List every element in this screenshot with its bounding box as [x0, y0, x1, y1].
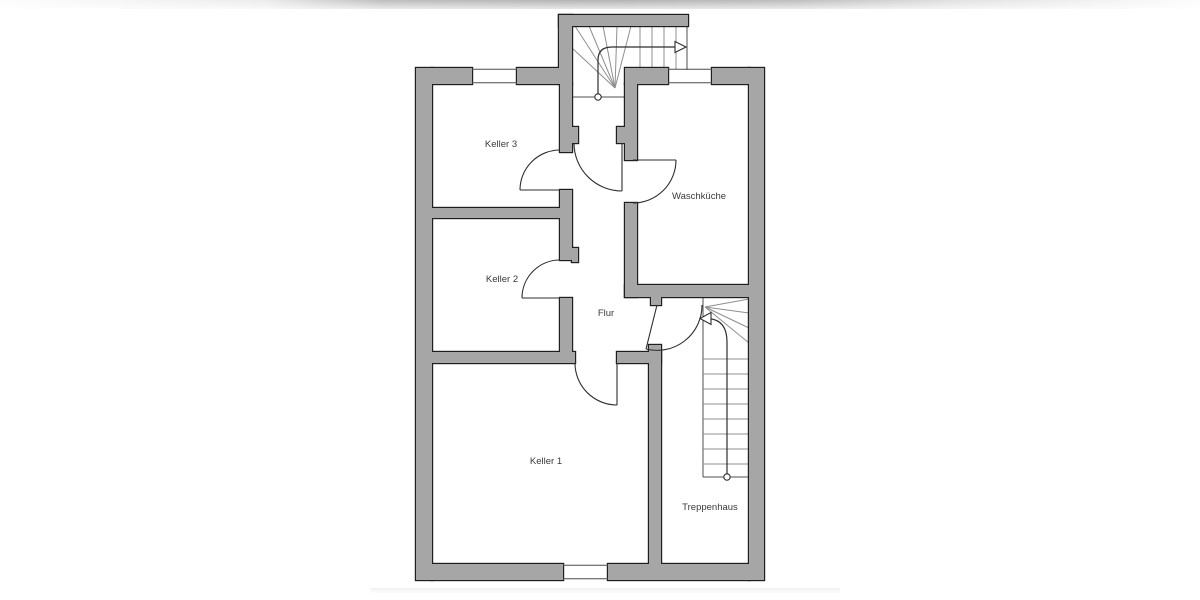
doors	[520, 143, 702, 405]
stair-tread	[589, 26, 615, 88]
room-label-flur: Flur	[598, 308, 614, 319]
lower-stairs	[700, 298, 749, 480]
walls-outline-layer	[416, 15, 764, 580]
stair-walk-line	[709, 319, 727, 474]
door-swing-arc-keller1	[575, 363, 617, 405]
room-labels: Keller 3 Keller 2 Keller 1 Waschküche Fl…	[485, 139, 738, 513]
floor-plan: Keller 3 Keller 2 Keller 1 Waschküche Fl…	[0, 0, 1200, 600]
walk-line-start-marker	[595, 94, 601, 100]
door-leaf-treppenhaus	[646, 305, 657, 349]
room-label-waschkueche: Waschküche	[672, 191, 726, 202]
stair-direction-arrow-icon	[675, 42, 686, 53]
room-label-keller2: Keller 2	[486, 274, 518, 285]
door-swing-arc-landing	[574, 143, 622, 191]
walk-line-start-marker	[724, 474, 730, 480]
stair-tread	[705, 299, 749, 307]
room-label-treppenhaus: Treppenhaus	[682, 502, 738, 513]
room-label-keller3: Keller 3	[485, 139, 517, 150]
door-swing-arc-keller2	[522, 260, 560, 298]
door-swing-arc-treppenhaus	[646, 305, 702, 350]
stair-tread	[615, 26, 617, 88]
door-swing-arc-keller3	[520, 150, 560, 190]
room-label-keller1: Keller 1	[530, 456, 562, 467]
screenshot-stage: Keller 3 Keller 2 Keller 1 Waschküche Fl…	[0, 0, 1200, 600]
door-swing-arc-waschkueche	[633, 160, 676, 203]
